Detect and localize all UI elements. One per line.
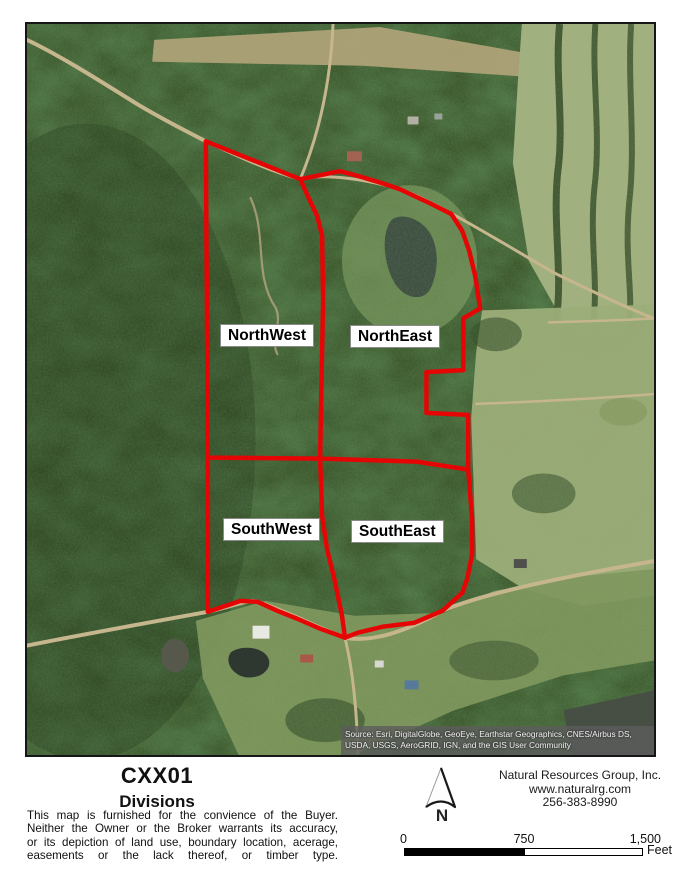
title-block: CXX01 Divisions [0,763,314,812]
scale-bar: 0 750 1,500 Feet [404,832,644,862]
scale-bar-track [404,848,643,856]
disclaimer-line: easements or the lack thereof, or timber… [27,849,338,862]
scale-tick-start: 0 [400,832,407,846]
forest-speckle-texture [27,24,654,755]
map-attribution: Source: Esri, DigitalGlobe, GeoEye, Eart… [341,726,656,755]
company-website: www.naturalrg.com [495,783,665,797]
map-title: CXX01 [0,763,314,789]
satellite-map: NorthWest NorthEast SouthWest SouthEast … [25,22,656,757]
parcel-label-northeast: NorthEast [350,325,440,348]
pond-small [161,639,189,673]
boundary-west-edge [206,141,208,611]
company-name: Natural Resources Group, Inc. [495,769,665,783]
parcel-label-northwest: NorthWest [220,324,314,347]
scale-unit: Feet [647,843,672,857]
disclaimer-line: Neither the Owner or the Broker warrants… [27,822,338,835]
scale-tick-mid: 750 [514,832,535,846]
disclaimer-line: or its depiction of land use, boundary l… [27,836,338,849]
north-arrow-label: N [424,806,460,826]
disclaimer-line: This map is furnished for the convience … [27,809,338,822]
satellite-map-canvas [27,24,654,755]
north-arrow-icon [421,765,463,811]
map-sheet: NorthWest NorthEast SouthWest SouthEast … [0,0,680,880]
company-phone: 256-383-8990 [495,796,665,810]
parcel-label-southeast: SouthEast [351,520,444,543]
company-info: Natural Resources Group, Inc. www.natura… [495,769,665,810]
disclaimer-text: This map is furnished for the convience … [27,809,338,863]
parcel-label-southwest: SouthWest [223,518,320,541]
scale-bar-filled-segment [405,849,525,855]
